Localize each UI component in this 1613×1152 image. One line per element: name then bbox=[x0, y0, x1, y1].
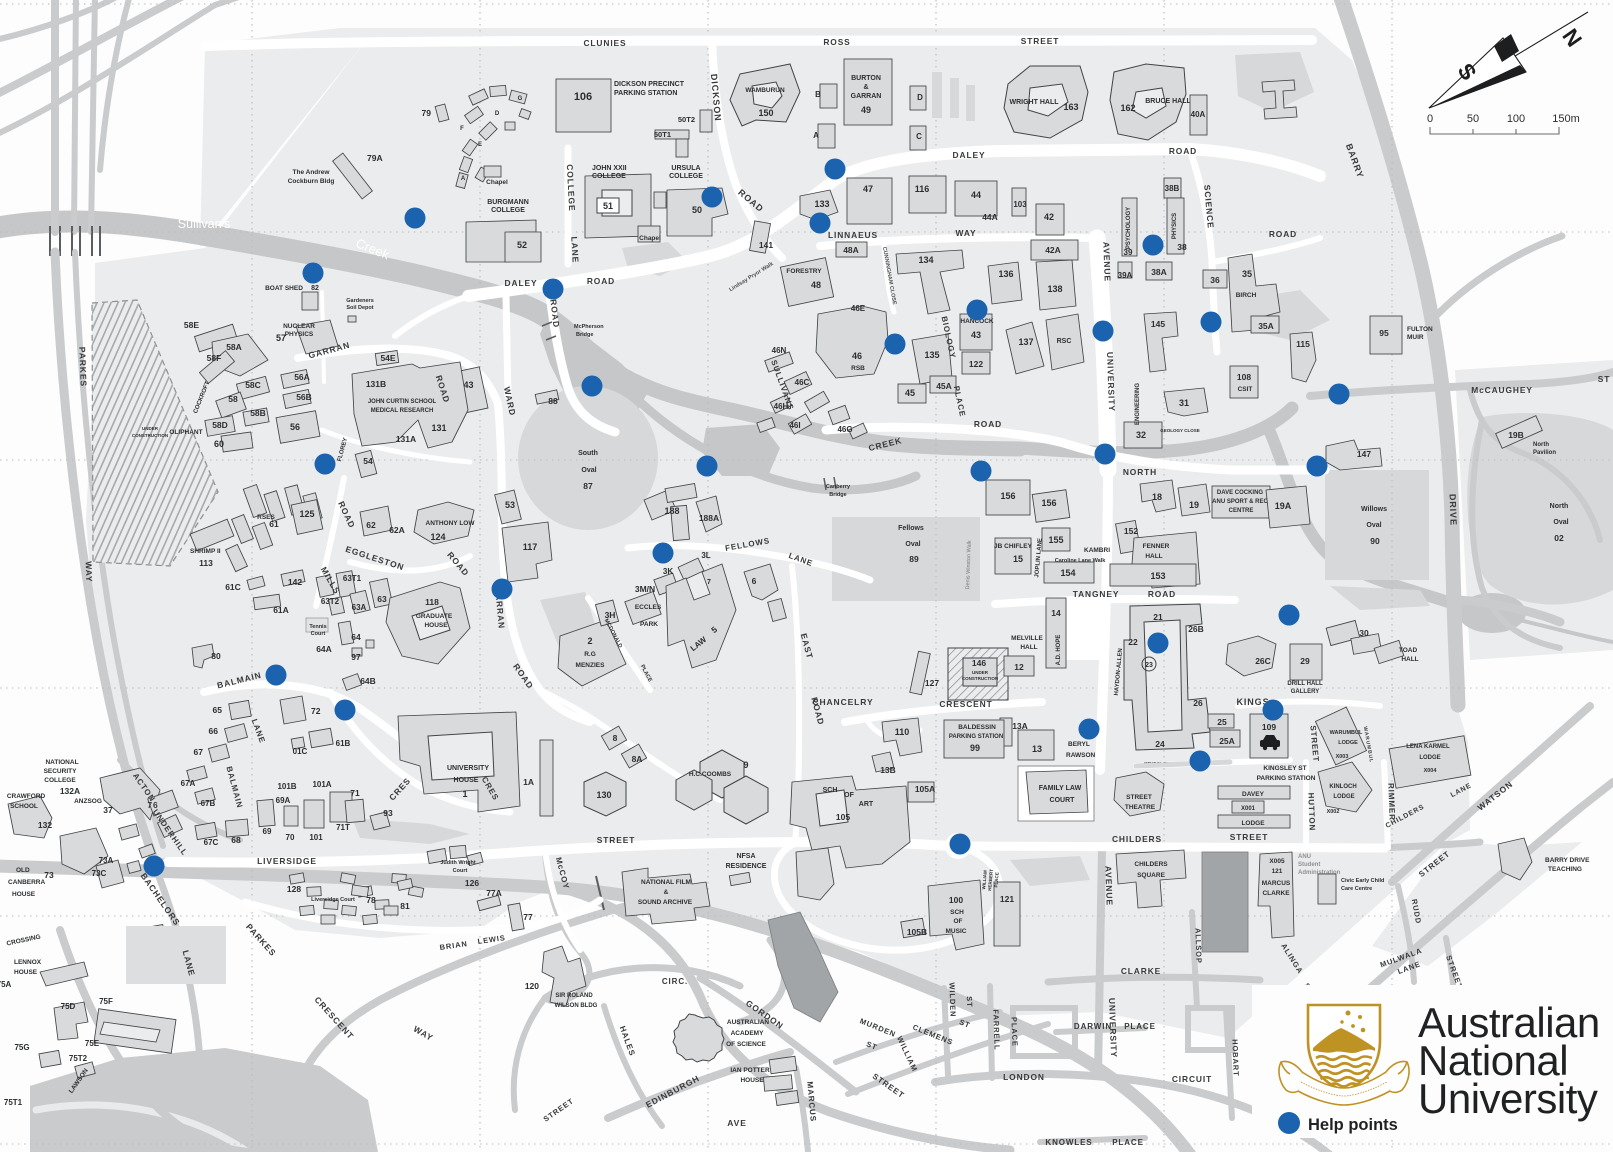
svg-text:LODGE: LODGE bbox=[1241, 820, 1265, 827]
svg-text:CHILDERS: CHILDERS bbox=[1112, 834, 1162, 844]
svg-text:142: 142 bbox=[288, 577, 302, 587]
svg-text:141: 141 bbox=[759, 240, 773, 250]
svg-text:18: 18 bbox=[1152, 492, 1162, 502]
svg-text:KAMBRI: KAMBRI bbox=[1084, 547, 1110, 554]
svg-text:STREET: STREET bbox=[1021, 36, 1059, 46]
svg-text:134: 134 bbox=[918, 255, 933, 265]
svg-text:61B: 61B bbox=[336, 739, 351, 748]
svg-text:132: 132 bbox=[38, 820, 52, 830]
svg-text:MUIR: MUIR bbox=[1407, 334, 1424, 341]
svg-text:56A: 56A bbox=[294, 372, 310, 382]
svg-text:IAN POTTER: IAN POTTER bbox=[730, 1067, 770, 1074]
svg-text:75F: 75F bbox=[99, 997, 113, 1006]
svg-text:Caroline Lane Walk: Caroline Lane Walk bbox=[1055, 558, 1106, 564]
svg-text:48: 48 bbox=[811, 280, 821, 290]
svg-text:C: C bbox=[916, 132, 922, 141]
svg-text:50: 50 bbox=[1467, 113, 1479, 125]
svg-text:79: 79 bbox=[422, 108, 432, 118]
svg-text:52: 52 bbox=[517, 240, 527, 250]
svg-text:CIRCUIT: CIRCUIT bbox=[1172, 1074, 1212, 1084]
svg-text:54E: 54E bbox=[380, 353, 395, 363]
svg-text:SCH: SCH bbox=[950, 909, 964, 916]
svg-text:HOUSE: HOUSE bbox=[12, 891, 36, 898]
svg-text:X005: X005 bbox=[1269, 858, 1285, 865]
svg-text:6: 6 bbox=[752, 576, 757, 586]
svg-text:73C: 73C bbox=[92, 869, 107, 878]
svg-text:ANU SPORT & REC: ANU SPORT & REC bbox=[1212, 499, 1268, 505]
svg-text:13: 13 bbox=[1032, 744, 1042, 754]
svg-text:R.G: R.G bbox=[584, 651, 596, 658]
svg-text:58: 58 bbox=[228, 394, 238, 404]
svg-text:LONDON: LONDON bbox=[1003, 1072, 1045, 1082]
svg-text:109: 109 bbox=[1262, 722, 1276, 732]
svg-text:64B: 64B bbox=[360, 676, 376, 686]
svg-text:78: 78 bbox=[366, 895, 376, 905]
svg-text:CLUNIES: CLUNIES bbox=[583, 38, 626, 48]
svg-text:BURTON: BURTON bbox=[851, 75, 881, 82]
svg-text:TOAD: TOAD bbox=[1399, 647, 1418, 654]
svg-text:117: 117 bbox=[523, 542, 538, 552]
svg-text:CONSTRUCTION: CONSTRUCTION bbox=[132, 433, 168, 438]
svg-text:LODGE: LODGE bbox=[1338, 740, 1358, 746]
svg-text:Willows: Willows bbox=[1361, 506, 1387, 513]
svg-text:HOUSE: HOUSE bbox=[454, 777, 479, 784]
svg-text:61: 61 bbox=[269, 519, 279, 529]
svg-text:44: 44 bbox=[971, 190, 981, 200]
svg-text:Gardeners: Gardeners bbox=[346, 298, 374, 304]
svg-text:79A: 79A bbox=[367, 153, 383, 163]
svg-text:Pavilion: Pavilion bbox=[1533, 450, 1556, 456]
svg-text:150: 150 bbox=[758, 108, 773, 118]
svg-text:26C: 26C bbox=[1255, 656, 1271, 666]
svg-text:ROAD: ROAD bbox=[1169, 146, 1197, 156]
svg-text:FORESTRY: FORESTRY bbox=[786, 268, 822, 275]
svg-text:152: 152 bbox=[1124, 526, 1138, 536]
svg-text:SCH: SCH bbox=[823, 787, 838, 794]
svg-text:WILDEN: WILDEN bbox=[947, 982, 957, 1017]
svg-text:HALL: HALL bbox=[1020, 644, 1037, 651]
svg-text:3M/N: 3M/N bbox=[635, 584, 655, 594]
svg-text:KNOWLES: KNOWLES bbox=[1045, 1138, 1092, 1147]
svg-text:93: 93 bbox=[383, 808, 393, 818]
svg-text:46G: 46G bbox=[837, 425, 852, 434]
svg-text:A: A bbox=[813, 131, 819, 140]
svg-text:15: 15 bbox=[1013, 554, 1023, 564]
svg-text:ROAD: ROAD bbox=[1148, 589, 1176, 599]
svg-text:116: 116 bbox=[915, 184, 930, 194]
svg-text:19: 19 bbox=[1189, 500, 1199, 510]
svg-text:106: 106 bbox=[574, 91, 592, 103]
svg-text:COLLEGE: COLLEGE bbox=[491, 207, 525, 214]
svg-text:UNIVERSITY: UNIVERSITY bbox=[447, 765, 489, 772]
svg-text:CSIT: CSIT bbox=[1238, 386, 1253, 393]
svg-text:CONSTRUCTION: CONSTRUCTION bbox=[962, 676, 998, 681]
svg-text:75T1: 75T1 bbox=[4, 1098, 23, 1107]
svg-text:120: 120 bbox=[525, 981, 539, 991]
svg-text:63A: 63A bbox=[352, 603, 367, 612]
svg-text:DRIVE: DRIVE bbox=[1447, 494, 1458, 526]
svg-text:56: 56 bbox=[290, 422, 300, 432]
svg-text:12: 12 bbox=[1014, 662, 1024, 672]
svg-text:CANBERRA: CANBERRA bbox=[8, 879, 46, 886]
svg-text:Oval: Oval bbox=[581, 467, 596, 474]
svg-text:Court: Court bbox=[453, 868, 468, 874]
svg-text:105A: 105A bbox=[915, 784, 935, 794]
svg-text:COLLEGE: COLLEGE bbox=[669, 173, 703, 180]
svg-text:73: 73 bbox=[44, 870, 54, 880]
svg-text:X003: X003 bbox=[1336, 754, 1349, 760]
svg-text:42: 42 bbox=[1044, 212, 1054, 222]
svg-text:LENNOX: LENNOX bbox=[14, 959, 42, 966]
svg-text:KINLOCH: KINLOCH bbox=[1329, 784, 1356, 790]
svg-text:Soil Depot: Soil Depot bbox=[346, 305, 373, 311]
svg-text:South: South bbox=[578, 450, 598, 457]
svg-text:LINNAEUS: LINNAEUS bbox=[828, 230, 878, 240]
svg-text:UNDER: UNDER bbox=[972, 670, 989, 675]
svg-text:LIVERSIDGE: LIVERSIDGE bbox=[257, 856, 317, 866]
svg-text:150m: 150m bbox=[1552, 113, 1580, 125]
svg-text:CLARKE: CLARKE bbox=[1121, 966, 1161, 976]
svg-text:30: 30 bbox=[1359, 628, 1369, 638]
svg-text:50: 50 bbox=[692, 205, 702, 215]
svg-text:46: 46 bbox=[852, 351, 862, 361]
svg-text:77: 77 bbox=[523, 912, 533, 922]
svg-text:82: 82 bbox=[311, 285, 319, 292]
svg-text:X004: X004 bbox=[1424, 768, 1438, 774]
svg-text:Bridge: Bridge bbox=[576, 332, 593, 338]
svg-text:DARWIN: DARWIN bbox=[1074, 1022, 1112, 1031]
svg-text:97: 97 bbox=[351, 652, 361, 662]
svg-text:56B: 56B bbox=[296, 392, 312, 402]
svg-text:115: 115 bbox=[1296, 339, 1310, 349]
svg-text:67A: 67A bbox=[181, 779, 196, 788]
svg-text:BRUCE HALL: BRUCE HALL bbox=[1145, 98, 1191, 105]
svg-text:BARRY DRIVE: BARRY DRIVE bbox=[1545, 857, 1590, 864]
svg-text:131A: 131A bbox=[396, 434, 416, 444]
svg-text:JOHN XXII: JOHN XXII bbox=[592, 165, 627, 172]
svg-text:133: 133 bbox=[814, 199, 829, 209]
svg-text:THEATRE: THEATRE bbox=[1125, 804, 1156, 811]
svg-text:Bridge: Bridge bbox=[829, 492, 846, 498]
svg-text:Oval: Oval bbox=[905, 541, 920, 548]
svg-text:71T: 71T bbox=[336, 823, 350, 832]
svg-text:D: D bbox=[495, 111, 500, 117]
svg-text:45: 45 bbox=[905, 388, 915, 398]
svg-text:North: North bbox=[1533, 442, 1549, 448]
svg-text:13A: 13A bbox=[1012, 721, 1028, 731]
svg-text:121: 121 bbox=[1000, 894, 1014, 904]
svg-text:137: 137 bbox=[1018, 337, 1033, 347]
svg-text:ROAD: ROAD bbox=[974, 419, 1002, 429]
svg-text:LODGE: LODGE bbox=[1333, 794, 1354, 800]
svg-text:50T1: 50T1 bbox=[654, 130, 671, 139]
svg-text:110: 110 bbox=[895, 727, 910, 737]
svg-text:136: 136 bbox=[998, 269, 1013, 279]
svg-text:SECURITY: SECURITY bbox=[44, 768, 78, 775]
svg-text:25: 25 bbox=[1217, 717, 1227, 727]
svg-text:Sullivan's: Sullivan's bbox=[178, 217, 230, 231]
svg-text:163: 163 bbox=[1063, 102, 1078, 112]
svg-text:118: 118 bbox=[425, 597, 439, 607]
svg-text:WAY: WAY bbox=[955, 228, 976, 238]
svg-text:75A: 75A bbox=[0, 980, 12, 989]
svg-text:89: 89 bbox=[909, 554, 919, 564]
svg-text:103: 103 bbox=[1013, 200, 1027, 209]
svg-text:WILSON BLDG: WILSON BLDG bbox=[555, 1003, 598, 1009]
svg-text:58A: 58A bbox=[226, 342, 242, 352]
svg-text:87: 87 bbox=[583, 481, 593, 491]
svg-text:3L: 3L bbox=[701, 551, 710, 560]
svg-text:SCHOOL: SCHOOL bbox=[10, 803, 38, 810]
svg-text:RAWSON: RAWSON bbox=[1066, 752, 1096, 759]
svg-text:Tennis: Tennis bbox=[309, 624, 326, 630]
svg-text:63T1: 63T1 bbox=[343, 574, 362, 583]
svg-text:LENA KARMEL: LENA KARMEL bbox=[1406, 744, 1450, 750]
svg-text:H.C.COOMBS: H.C.COOMBS bbox=[689, 771, 732, 778]
svg-text:40A: 40A bbox=[1191, 110, 1206, 119]
svg-text:Judith Wright: Judith Wright bbox=[440, 860, 476, 866]
svg-text:80: 80 bbox=[211, 651, 221, 661]
svg-text:75D: 75D bbox=[61, 1002, 76, 1011]
svg-text:155: 155 bbox=[1048, 535, 1063, 545]
svg-text:GRADUATE: GRADUATE bbox=[416, 613, 453, 620]
svg-text:ENGINEERING: ENGINEERING bbox=[1135, 383, 1141, 425]
svg-text:46E: 46E bbox=[851, 304, 866, 313]
svg-text:100: 100 bbox=[949, 895, 963, 905]
svg-text:42A: 42A bbox=[1045, 245, 1061, 255]
svg-text:88: 88 bbox=[548, 396, 558, 406]
svg-text:Chapel: Chapel bbox=[486, 179, 508, 186]
svg-text:Civic Early Child: Civic Early Child bbox=[1341, 878, 1384, 884]
svg-text:AVE: AVE bbox=[727, 1118, 747, 1128]
svg-text:22: 22 bbox=[1128, 637, 1138, 647]
svg-text:Student: Student bbox=[1298, 862, 1320, 868]
svg-text:Oval: Oval bbox=[1366, 522, 1381, 529]
svg-text:&: & bbox=[863, 84, 868, 91]
svg-text:OF SCIENCE: OF SCIENCE bbox=[726, 1041, 766, 1048]
svg-text:132A: 132A bbox=[60, 786, 80, 796]
svg-text:31: 31 bbox=[1179, 398, 1189, 408]
svg-text:0: 0 bbox=[1427, 113, 1433, 125]
svg-text:101: 101 bbox=[309, 833, 323, 842]
svg-text:38: 38 bbox=[1177, 242, 1187, 252]
svg-text:73A: 73A bbox=[99, 856, 114, 865]
svg-text:1: 1 bbox=[462, 789, 467, 799]
svg-text:NUCLEAR: NUCLEAR bbox=[283, 323, 315, 330]
svg-text:SQUARE: SQUARE bbox=[1137, 872, 1165, 879]
svg-text:DICKSON PRECINCT: DICKSON PRECINCT bbox=[614, 81, 685, 88]
svg-text:ROAD: ROAD bbox=[587, 276, 615, 286]
svg-text:ROSS: ROSS bbox=[823, 37, 850, 47]
svg-text:8A: 8A bbox=[632, 754, 643, 764]
svg-text:JB CHIFLEY: JB CHIFLEY bbox=[994, 543, 1033, 550]
svg-text:HOUSE: HOUSE bbox=[740, 1077, 764, 1084]
svg-text:McCAUGHEY: McCAUGHEY bbox=[1471, 385, 1533, 395]
svg-text:PSYCHOLOGY: PSYCHOLOGY bbox=[1126, 207, 1132, 249]
svg-text:BALDESSIN: BALDESSIN bbox=[958, 724, 996, 731]
svg-text:BERYL: BERYL bbox=[1068, 741, 1090, 748]
svg-text:UNIVERSITY: UNIVERSITY bbox=[1105, 352, 1117, 412]
svg-text:AVENUE: AVENUE bbox=[1103, 866, 1114, 907]
svg-text:135: 135 bbox=[924, 350, 939, 360]
svg-text:MUSIC: MUSIC bbox=[946, 928, 967, 935]
svg-text:81: 81 bbox=[400, 901, 410, 911]
svg-text:51: 51 bbox=[603, 201, 613, 211]
svg-text:24: 24 bbox=[1155, 739, 1165, 749]
svg-text:URSULA: URSULA bbox=[671, 165, 700, 172]
svg-text:50T2: 50T2 bbox=[678, 115, 695, 124]
svg-text:JOHN CURTIN SCHOOL: JOHN CURTIN SCHOOL bbox=[368, 399, 437, 405]
svg-text:BURGMANN: BURGMANN bbox=[487, 199, 529, 206]
svg-text:69: 69 bbox=[263, 827, 272, 836]
svg-text:TEACHING: TEACHING bbox=[1548, 866, 1582, 873]
svg-text:OLD: OLD bbox=[16, 867, 30, 874]
svg-text:45A: 45A bbox=[936, 381, 952, 391]
svg-text:145: 145 bbox=[1151, 319, 1165, 329]
svg-text:2: 2 bbox=[587, 636, 592, 646]
svg-text:HOBART: HOBART bbox=[1230, 1039, 1240, 1077]
svg-text:RIMMER: RIMMER bbox=[1386, 783, 1396, 821]
svg-text:NATIONAL FILM: NATIONAL FILM bbox=[641, 879, 691, 886]
svg-text:130: 130 bbox=[596, 790, 611, 800]
svg-text:HOUSE: HOUSE bbox=[424, 622, 448, 629]
svg-text:128: 128 bbox=[287, 884, 301, 894]
svg-text:MENZIES: MENZIES bbox=[576, 662, 606, 669]
svg-text:STREET: STREET bbox=[597, 835, 635, 845]
svg-text:AUSTRALIAN: AUSTRALIAN bbox=[727, 1019, 770, 1026]
svg-text:B: B bbox=[815, 90, 821, 99]
svg-text:60: 60 bbox=[214, 439, 224, 449]
svg-text:TANGNEY: TANGNEY bbox=[1073, 589, 1120, 599]
svg-text:A: A bbox=[461, 176, 466, 182]
svg-text:47: 47 bbox=[863, 184, 873, 194]
svg-text:113: 113 bbox=[199, 558, 213, 568]
svg-text:WAY: WAY bbox=[84, 561, 95, 583]
svg-text:CRESCENT: CRESCENT bbox=[939, 699, 992, 709]
svg-text:ROAD: ROAD bbox=[1269, 229, 1297, 239]
svg-text:63T2: 63T2 bbox=[321, 597, 340, 606]
svg-text:Cockburn Bldg: Cockburn Bldg bbox=[288, 178, 335, 185]
svg-text:RSB: RSB bbox=[851, 365, 865, 372]
svg-text:61A: 61A bbox=[273, 605, 289, 615]
svg-text:162: 162 bbox=[1120, 103, 1135, 113]
svg-text:WARUMBUL: WARUMBUL bbox=[1330, 730, 1363, 736]
svg-text:121: 121 bbox=[1272, 868, 1283, 875]
svg-text:13B: 13B bbox=[880, 765, 896, 775]
svg-text:14: 14 bbox=[1051, 608, 1061, 618]
svg-text:CENTRE: CENTRE bbox=[1229, 508, 1254, 514]
svg-text:58D: 58D bbox=[212, 420, 228, 430]
svg-text:66: 66 bbox=[209, 726, 219, 736]
svg-text:Help points: Help points bbox=[1308, 1116, 1398, 1134]
svg-text:F: F bbox=[460, 126, 464, 132]
svg-text:COLLEGE: COLLEGE bbox=[44, 777, 76, 784]
svg-text:HUTTON: HUTTON bbox=[1306, 792, 1316, 831]
svg-text:PHYSICS: PHYSICS bbox=[1172, 213, 1178, 239]
svg-text:ST: ST bbox=[965, 996, 974, 1008]
svg-text:29: 29 bbox=[1300, 656, 1310, 666]
svg-text:HALL: HALL bbox=[1145, 553, 1162, 560]
svg-text:DALEY: DALEY bbox=[505, 278, 538, 288]
svg-text:DAVEY: DAVEY bbox=[1242, 791, 1265, 798]
svg-text:72: 72 bbox=[311, 706, 321, 716]
svg-text:CIRC.: CIRC. bbox=[662, 977, 688, 986]
svg-text:OF: OF bbox=[953, 918, 962, 925]
svg-text:58F: 58F bbox=[207, 353, 222, 363]
svg-text:58E: 58E bbox=[184, 320, 199, 330]
svg-text:9: 9 bbox=[743, 760, 748, 770]
svg-text:35: 35 bbox=[1242, 269, 1252, 279]
svg-text:D: D bbox=[917, 93, 923, 102]
svg-text:PLACE: PLACE bbox=[1112, 1138, 1144, 1147]
svg-text:46C: 46C bbox=[795, 378, 810, 387]
svg-text:54: 54 bbox=[363, 456, 373, 466]
svg-text:131B: 131B bbox=[366, 379, 386, 389]
svg-text:PLACE: PLACE bbox=[1124, 1022, 1156, 1031]
svg-text:ACADEMY: ACADEMY bbox=[731, 1030, 765, 1037]
svg-text:SIR ROLAND: SIR ROLAND bbox=[555, 993, 593, 999]
svg-text:138: 138 bbox=[1047, 284, 1062, 294]
svg-text:E: E bbox=[478, 142, 482, 148]
svg-text:57: 57 bbox=[276, 333, 286, 343]
svg-text:OF: OF bbox=[844, 792, 854, 799]
svg-text:39: 39 bbox=[1124, 248, 1133, 257]
svg-text:A.D. HOPE: A.D. HOPE bbox=[1056, 635, 1062, 666]
svg-text:127: 127 bbox=[925, 678, 939, 688]
svg-text:ART: ART bbox=[859, 801, 874, 808]
svg-text:PLACE: PLACE bbox=[1009, 1017, 1019, 1047]
svg-text:188: 188 bbox=[664, 506, 679, 516]
svg-text:153: 153 bbox=[1150, 571, 1165, 581]
svg-text:44A: 44A bbox=[982, 212, 998, 222]
svg-text:CLARKE: CLARKE bbox=[1262, 890, 1290, 897]
svg-text:46I: 46I bbox=[789, 421, 800, 430]
svg-text:71: 71 bbox=[350, 788, 360, 798]
svg-text:X001: X001 bbox=[1241, 806, 1256, 812]
svg-text:McPherson: McPherson bbox=[574, 324, 604, 330]
svg-text:64A: 64A bbox=[316, 644, 332, 654]
svg-text:38A: 38A bbox=[1151, 267, 1167, 277]
svg-text:BOAT SHED: BOAT SHED bbox=[265, 285, 303, 292]
svg-text:FULTON: FULTON bbox=[1407, 326, 1433, 333]
svg-text:Court: Court bbox=[311, 631, 326, 637]
svg-text:1A: 1A bbox=[523, 777, 534, 787]
svg-text:X002: X002 bbox=[1327, 809, 1340, 815]
svg-text:154: 154 bbox=[1060, 568, 1075, 578]
svg-text:Chapel: Chapel bbox=[639, 235, 661, 242]
svg-text:156: 156 bbox=[1000, 491, 1015, 501]
svg-text:131: 131 bbox=[431, 423, 446, 433]
svg-text:WRIGHT HALL: WRIGHT HALL bbox=[1010, 99, 1060, 106]
svg-text:64: 64 bbox=[351, 632, 361, 642]
svg-text:DALEY: DALEY bbox=[953, 150, 986, 160]
svg-text:77A: 77A bbox=[486, 888, 502, 898]
svg-text:ANTHONY LOW: ANTHONY LOW bbox=[426, 520, 476, 527]
svg-text:GEOLOGY CLOSE: GEOLOGY CLOSE bbox=[1160, 428, 1199, 433]
svg-text:&: & bbox=[664, 889, 669, 896]
svg-text:37: 37 bbox=[103, 805, 113, 815]
svg-text:62A: 62A bbox=[389, 525, 405, 535]
svg-text:LODGE: LODGE bbox=[1419, 755, 1440, 761]
svg-text:HALL: HALL bbox=[1401, 656, 1418, 663]
svg-text:61C: 61C bbox=[225, 582, 241, 592]
svg-text:Care Centre: Care Centre bbox=[1341, 886, 1372, 892]
svg-text:NFSA: NFSA bbox=[736, 853, 755, 860]
svg-text:SOUND ARCHIVE: SOUND ARCHIVE bbox=[638, 899, 693, 906]
svg-text:67C: 67C bbox=[204, 838, 219, 847]
svg-text:32: 32 bbox=[1136, 430, 1146, 440]
svg-text:58B: 58B bbox=[250, 408, 266, 418]
